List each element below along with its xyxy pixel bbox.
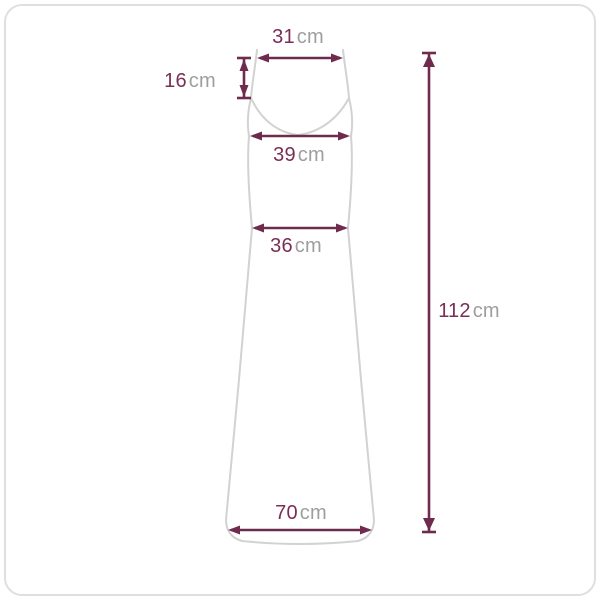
length-unit: cm <box>473 300 500 322</box>
bust-value: 39 <box>273 144 296 166</box>
label-strap-width: 31cm <box>272 27 324 47</box>
arrow-up-icon <box>240 59 249 71</box>
waist-unit: cm <box>295 235 322 257</box>
strap-width-value: 31 <box>272 26 295 48</box>
waist-value: 36 <box>270 235 293 257</box>
label-strap-length: 16cm <box>164 71 216 91</box>
arrow-right-icon <box>338 132 350 141</box>
arrow-left-icon <box>250 132 262 141</box>
arrow-left-icon <box>257 54 269 63</box>
label-waist: 36cm <box>270 236 322 256</box>
strap-length-unit: cm <box>189 70 216 92</box>
label-hem: 70cm <box>275 503 327 523</box>
dim-strap-width <box>257 54 343 63</box>
arrow-right-icon <box>336 224 348 233</box>
arrow-up-icon <box>423 54 435 67</box>
hem-unit: cm <box>300 502 327 524</box>
strap-width-unit: cm <box>297 26 324 48</box>
dim-waist <box>252 224 348 233</box>
dress-neckline <box>251 98 349 135</box>
dim-length <box>422 53 436 532</box>
arrow-down-icon <box>240 85 249 97</box>
arrow-right-icon <box>331 54 343 63</box>
hem-value: 70 <box>275 502 298 524</box>
length-value: 112 <box>438 300 471 322</box>
label-length: 112cm <box>438 301 500 321</box>
measurement-diagram: 31cm 16cm 39cm 36cm 70cm 112cm <box>0 0 600 600</box>
strap-length-value: 16 <box>164 70 187 92</box>
arrow-down-icon <box>423 518 435 531</box>
dim-strap-length <box>237 58 251 98</box>
bust-unit: cm <box>298 144 325 166</box>
arrow-left-icon <box>252 224 264 233</box>
dress-outline <box>226 50 374 544</box>
label-bust: 39cm <box>273 145 325 165</box>
dim-hem <box>228 526 372 535</box>
dim-bust <box>250 132 350 141</box>
